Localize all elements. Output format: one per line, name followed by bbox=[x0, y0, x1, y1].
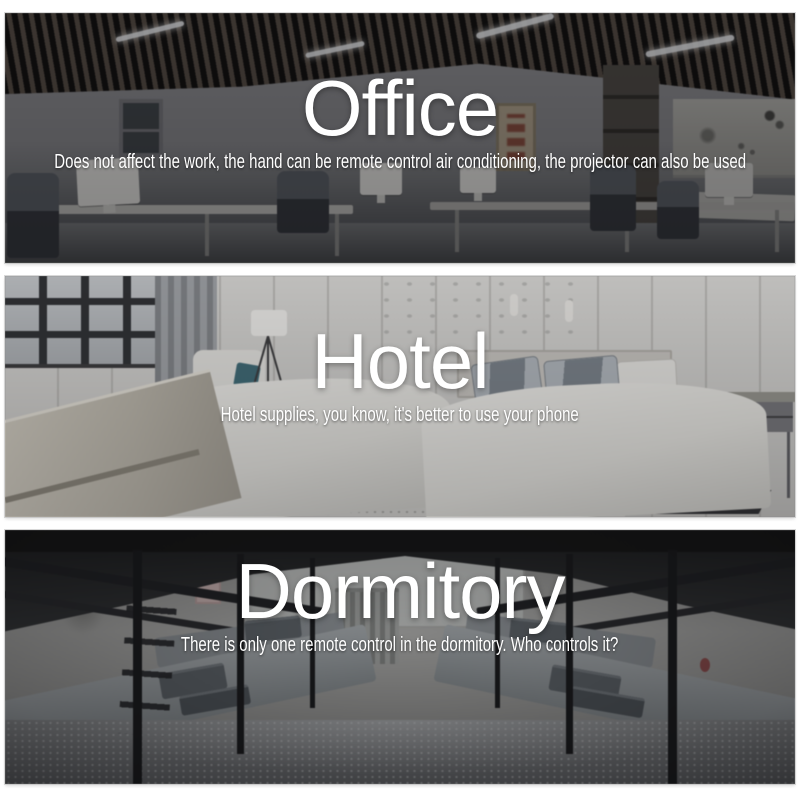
panel-hotel: Hotel Hotel supplies, you know, it's bet… bbox=[5, 276, 795, 517]
hotel-scene bbox=[5, 276, 795, 517]
office-scene bbox=[5, 13, 795, 263]
dormitory-scene bbox=[5, 530, 795, 784]
office-dark-overlay bbox=[5, 13, 795, 263]
page: Office Does not affect the work, the han… bbox=[0, 0, 800, 799]
dormitory-dark-overlay bbox=[5, 530, 795, 784]
panel-dormitory: Dormitory There is only one remote contr… bbox=[5, 530, 795, 784]
hotel-dark-overlay bbox=[5, 276, 795, 517]
panel-office: Office Does not affect the work, the han… bbox=[5, 13, 795, 263]
